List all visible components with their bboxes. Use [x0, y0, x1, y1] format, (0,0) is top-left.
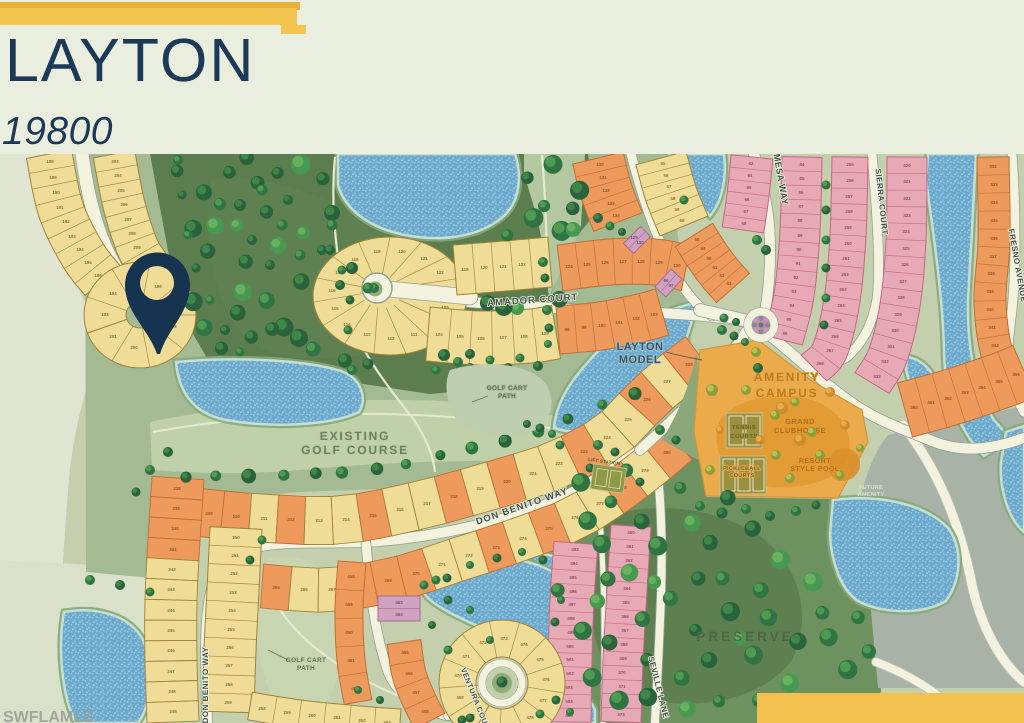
svg-text:331: 331 — [887, 344, 895, 349]
svg-text:EXISTING: EXISTING — [320, 429, 390, 443]
svg-text:280: 280 — [663, 450, 671, 455]
svg-text:PATH: PATH — [297, 665, 315, 672]
svg-text:333: 333 — [990, 182, 998, 187]
svg-text:CAMPUS: CAMPUS — [756, 386, 819, 400]
svg-text:60: 60 — [680, 218, 685, 223]
svg-text:122: 122 — [436, 270, 444, 275]
svg-text:366: 366 — [621, 614, 629, 619]
svg-text:256: 256 — [226, 645, 234, 650]
svg-text:DON BENITO WAY: DON BENITO WAY — [201, 646, 210, 723]
svg-text:126: 126 — [601, 260, 609, 265]
svg-text:96: 96 — [783, 331, 788, 336]
svg-text:214: 214 — [342, 517, 350, 522]
svg-text:257: 257 — [225, 663, 233, 668]
svg-text:63: 63 — [749, 161, 754, 166]
svg-text:57: 57 — [667, 184, 672, 189]
svg-text:88: 88 — [798, 218, 803, 223]
svg-text:91: 91 — [796, 261, 801, 266]
svg-text:277: 277 — [596, 501, 604, 506]
svg-text:324: 324 — [902, 229, 910, 234]
svg-text:190: 190 — [52, 190, 60, 195]
svg-text:460: 460 — [345, 630, 353, 635]
svg-text:228: 228 — [685, 362, 693, 367]
svg-text:251: 251 — [231, 553, 239, 558]
svg-text:PRESERVE: PRESERVE — [696, 629, 793, 644]
svg-text:266: 266 — [300, 587, 308, 592]
svg-text:STYLE POOL: STYLE POOL — [790, 466, 840, 473]
svg-text:240: 240 — [171, 526, 179, 531]
svg-text:219: 219 — [476, 486, 484, 491]
svg-text:252: 252 — [230, 571, 238, 576]
svg-text:207: 207 — [124, 217, 132, 222]
svg-text:101: 101 — [615, 320, 623, 325]
svg-text:84: 84 — [800, 162, 805, 167]
svg-text:248: 248 — [168, 689, 176, 694]
svg-text:259: 259 — [283, 710, 291, 715]
svg-text:95: 95 — [787, 317, 792, 322]
svg-text:223: 223 — [580, 449, 588, 454]
svg-text:250: 250 — [232, 535, 240, 540]
svg-text:SWFLAMLS: SWFLAMLS — [3, 709, 94, 723]
svg-text:100: 100 — [598, 323, 606, 328]
svg-text:192: 192 — [62, 219, 70, 224]
svg-text:196: 196 — [154, 284, 162, 289]
svg-text:365: 365 — [995, 379, 1003, 384]
svg-text:59: 59 — [675, 207, 680, 212]
svg-text:90: 90 — [797, 247, 802, 252]
svg-text:224: 224 — [603, 435, 611, 440]
svg-text:106: 106 — [477, 336, 485, 341]
svg-text:320: 320 — [903, 163, 911, 168]
svg-text:LAYTON: LAYTON — [5, 26, 255, 94]
svg-text:218: 218 — [450, 494, 458, 499]
svg-text:244: 244 — [167, 608, 175, 613]
svg-text:209: 209 — [133, 245, 141, 250]
svg-text:364: 364 — [623, 586, 631, 591]
svg-text:206: 206 — [120, 202, 128, 207]
svg-text:339: 339 — [986, 289, 994, 294]
svg-text:55: 55 — [661, 161, 666, 166]
svg-text:246: 246 — [167, 648, 175, 653]
svg-text:58: 58 — [695, 237, 700, 242]
svg-text:241: 241 — [169, 547, 177, 552]
svg-text:97: 97 — [669, 283, 674, 288]
svg-text:61: 61 — [713, 265, 718, 270]
svg-text:495: 495 — [569, 575, 577, 580]
svg-text:258: 258 — [845, 209, 853, 214]
svg-text:212: 212 — [287, 517, 295, 522]
svg-text:115: 115 — [331, 306, 339, 311]
svg-text:259: 259 — [224, 700, 232, 705]
svg-text:475: 475 — [536, 657, 544, 662]
svg-text:134: 134 — [612, 213, 620, 218]
svg-text:275: 275 — [545, 526, 553, 531]
svg-text:AMENITY: AMENITY — [754, 370, 821, 384]
svg-text:458: 458 — [421, 709, 429, 714]
svg-text:211: 211 — [260, 516, 268, 521]
svg-text:267: 267 — [826, 348, 834, 353]
svg-text:132: 132 — [602, 188, 610, 193]
svg-text:342: 342 — [991, 343, 999, 348]
svg-text:65: 65 — [747, 185, 752, 190]
svg-text:325: 325 — [902, 246, 910, 251]
svg-text:PICKLEBALL: PICKLEBALL — [723, 466, 761, 472]
svg-text:208: 208 — [128, 231, 136, 236]
svg-text:225: 225 — [624, 417, 632, 422]
svg-text:92: 92 — [794, 275, 799, 280]
svg-text:497: 497 — [568, 602, 576, 607]
svg-text:262: 262 — [358, 718, 366, 723]
svg-text:361: 361 — [626, 544, 634, 549]
svg-text:259: 259 — [844, 225, 852, 230]
svg-text:59: 59 — [701, 246, 706, 251]
svg-text:473: 473 — [500, 636, 508, 641]
svg-text:63: 63 — [727, 281, 732, 286]
svg-text:GRAND: GRAND — [785, 417, 815, 426]
svg-text:328: 328 — [897, 295, 905, 300]
svg-text:273: 273 — [492, 545, 500, 550]
svg-text:371: 371 — [618, 684, 626, 689]
svg-text:RESORT: RESORT — [799, 458, 831, 465]
svg-text:268: 268 — [816, 361, 824, 366]
svg-text:104: 104 — [435, 332, 443, 337]
svg-text:327: 327 — [899, 279, 907, 284]
svg-text:264: 264 — [837, 303, 845, 308]
svg-text:269: 269 — [384, 578, 392, 583]
svg-text:262: 262 — [841, 272, 849, 277]
svg-text:98: 98 — [565, 327, 570, 332]
svg-text:CLUBHOUSE: CLUBHOUSE — [774, 426, 826, 435]
svg-text:220: 220 — [503, 479, 511, 484]
svg-text:221: 221 — [529, 471, 537, 476]
svg-text:472: 472 — [479, 640, 487, 645]
svg-text:119: 119 — [461, 267, 469, 272]
svg-text:85: 85 — [800, 176, 805, 181]
svg-text:501: 501 — [566, 657, 574, 662]
svg-text:203: 203 — [111, 159, 119, 164]
svg-text:256: 256 — [846, 178, 854, 183]
svg-text:108: 108 — [520, 334, 528, 339]
svg-text:457: 457 — [412, 690, 420, 695]
svg-text:463: 463 — [395, 600, 403, 605]
svg-text:503: 503 — [565, 685, 573, 690]
svg-text:332: 332 — [881, 359, 889, 364]
svg-text:131: 131 — [599, 175, 607, 180]
svg-text:245: 245 — [167, 628, 175, 633]
svg-text:129: 129 — [655, 260, 663, 265]
svg-text:128: 128 — [637, 259, 645, 264]
svg-text:471: 471 — [462, 654, 470, 659]
svg-text:93: 93 — [792, 289, 797, 294]
svg-text:498: 498 — [567, 616, 575, 621]
svg-text:332: 332 — [989, 164, 997, 169]
svg-text:255: 255 — [227, 627, 235, 632]
svg-text:209: 209 — [205, 511, 213, 516]
svg-text:COURTS: COURTS — [729, 473, 754, 479]
svg-text:500: 500 — [566, 644, 574, 649]
svg-text:189: 189 — [49, 175, 57, 180]
svg-text:GOLF COURSE: GOLF COURSE — [301, 443, 409, 457]
svg-text:68: 68 — [742, 221, 747, 226]
svg-text:113: 113 — [363, 332, 371, 337]
svg-text:334: 334 — [990, 200, 998, 205]
svg-text:370: 370 — [618, 670, 626, 675]
svg-text:247: 247 — [167, 669, 175, 674]
svg-text:130: 130 — [636, 240, 644, 245]
svg-text:121: 121 — [420, 256, 428, 261]
svg-text:GOLF CART: GOLF CART — [286, 657, 327, 664]
svg-text:249: 249 — [169, 709, 177, 714]
svg-text:AMENITY: AMENITY — [858, 492, 885, 498]
svg-text:193: 193 — [68, 234, 76, 239]
svg-text:PATH: PATH — [498, 393, 516, 400]
svg-text:254: 254 — [228, 608, 236, 613]
svg-text:TENNIS: TENNIS — [732, 424, 756, 431]
svg-text:369: 369 — [619, 656, 627, 661]
svg-text:270: 270 — [412, 571, 420, 576]
svg-text:118: 118 — [351, 257, 359, 262]
svg-text:338: 338 — [987, 271, 995, 276]
svg-text:120: 120 — [480, 265, 488, 270]
svg-text:266: 266 — [831, 334, 839, 339]
svg-text:58: 58 — [671, 196, 676, 201]
svg-text:19800: 19800 — [2, 110, 113, 153]
svg-text:89: 89 — [798, 233, 803, 238]
svg-text:193: 193 — [101, 312, 109, 317]
svg-text:321: 321 — [903, 179, 911, 184]
svg-text:194: 194 — [76, 247, 84, 252]
svg-text:330: 330 — [891, 328, 899, 333]
svg-text:265: 265 — [834, 318, 842, 323]
svg-text:201: 201 — [109, 334, 117, 339]
svg-text:341: 341 — [988, 325, 996, 330]
svg-text:276: 276 — [571, 515, 579, 520]
svg-text:242: 242 — [168, 567, 176, 572]
svg-text:195: 195 — [84, 260, 92, 265]
svg-text:271: 271 — [438, 562, 446, 567]
svg-text:105: 105 — [456, 334, 464, 339]
svg-text:103: 103 — [650, 312, 658, 317]
svg-text:99: 99 — [582, 325, 587, 330]
svg-text:FUTURE: FUTURE — [859, 485, 883, 491]
svg-text:478: 478 — [526, 715, 534, 720]
svg-text:56: 56 — [664, 173, 669, 178]
svg-text:124: 124 — [565, 264, 573, 269]
svg-text:367: 367 — [621, 628, 629, 633]
svg-text:112: 112 — [387, 336, 395, 341]
svg-text:455: 455 — [401, 650, 409, 655]
svg-text:274: 274 — [519, 536, 527, 541]
svg-text:188: 188 — [46, 159, 54, 164]
svg-text:267: 267 — [328, 587, 336, 592]
svg-text:502: 502 — [566, 671, 574, 676]
svg-text:272: 272 — [465, 553, 473, 558]
svg-text:130: 130 — [596, 162, 604, 167]
svg-text:265: 265 — [272, 585, 280, 590]
svg-text:194: 194 — [109, 291, 117, 296]
svg-text:364: 364 — [978, 385, 986, 390]
svg-text:127: 127 — [619, 259, 627, 264]
svg-text:243: 243 — [167, 587, 175, 592]
svg-text:227: 227 — [663, 379, 671, 384]
svg-text:122: 122 — [518, 262, 526, 267]
svg-text:469: 469 — [456, 695, 464, 700]
svg-text:335: 335 — [990, 218, 998, 223]
svg-text:87: 87 — [799, 204, 804, 209]
svg-text:102: 102 — [632, 316, 640, 321]
svg-text:191: 191 — [56, 205, 64, 210]
svg-text:64: 64 — [748, 173, 753, 178]
svg-text:496: 496 — [569, 589, 577, 594]
svg-text:COURTS: COURTS — [730, 433, 758, 440]
svg-text:368: 368 — [620, 642, 628, 647]
svg-text:333: 333 — [873, 374, 881, 379]
svg-text:86: 86 — [799, 190, 804, 195]
svg-text:213: 213 — [315, 518, 323, 523]
svg-text:210: 210 — [232, 514, 240, 519]
svg-text:204: 204 — [114, 173, 122, 178]
svg-text:326: 326 — [901, 262, 909, 267]
svg-text:464: 464 — [395, 612, 403, 617]
svg-text:260: 260 — [308, 713, 316, 718]
svg-text:365: 365 — [622, 600, 630, 605]
svg-text:LAYTON: LAYTON — [616, 341, 663, 353]
svg-text:205: 205 — [117, 188, 125, 193]
svg-text:125: 125 — [583, 262, 591, 267]
svg-text:255: 255 — [846, 162, 854, 167]
svg-text:340: 340 — [986, 307, 994, 312]
svg-text:494: 494 — [570, 561, 578, 566]
svg-text:133: 133 — [607, 201, 615, 206]
svg-text:215: 215 — [369, 513, 377, 518]
svg-text:474: 474 — [520, 642, 528, 647]
svg-text:477: 477 — [539, 698, 547, 703]
svg-text:253: 253 — [229, 590, 237, 595]
svg-text:258: 258 — [225, 682, 233, 687]
svg-text:459: 459 — [345, 602, 353, 607]
svg-text:361: 361 — [927, 400, 935, 405]
svg-text:329: 329 — [894, 312, 902, 317]
svg-text:200: 200 — [130, 345, 138, 350]
svg-text:116: 116 — [328, 288, 336, 293]
svg-text:67: 67 — [744, 209, 749, 214]
svg-text:121: 121 — [499, 264, 507, 269]
svg-text:458: 458 — [347, 574, 355, 579]
svg-text:217: 217 — [423, 501, 431, 506]
svg-text:94: 94 — [790, 303, 795, 308]
svg-text:119: 119 — [373, 249, 381, 254]
svg-text:260: 260 — [844, 241, 852, 246]
svg-text:120: 120 — [398, 249, 406, 254]
svg-text:261: 261 — [842, 256, 850, 261]
svg-text:337: 337 — [989, 254, 997, 259]
svg-text:263: 263 — [839, 287, 847, 292]
svg-text:362: 362 — [944, 396, 952, 401]
svg-text:111: 111 — [411, 332, 418, 337]
svg-text:461: 461 — [347, 658, 355, 663]
svg-text:336: 336 — [990, 236, 998, 241]
svg-text:373: 373 — [617, 712, 625, 717]
svg-text:257: 257 — [845, 194, 853, 199]
svg-text:60: 60 — [707, 256, 712, 261]
svg-text:476: 476 — [542, 677, 550, 682]
svg-text:366: 366 — [1012, 372, 1020, 377]
svg-text:493: 493 — [571, 547, 579, 552]
svg-text:258: 258 — [258, 706, 266, 711]
svg-text:62: 62 — [720, 273, 725, 278]
svg-text:456: 456 — [405, 671, 413, 676]
svg-text:261: 261 — [333, 715, 341, 720]
svg-text:216: 216 — [396, 507, 404, 512]
svg-text:362: 362 — [625, 558, 633, 563]
svg-text:239: 239 — [172, 506, 180, 511]
svg-text:222: 222 — [555, 461, 563, 466]
svg-text:107: 107 — [499, 335, 507, 340]
svg-text:363: 363 — [961, 390, 969, 395]
svg-text:279: 279 — [641, 468, 649, 473]
svg-text:323: 323 — [903, 213, 911, 218]
svg-text:GOLF CART: GOLF CART — [487, 385, 528, 392]
svg-text:MODEL: MODEL — [619, 354, 661, 366]
svg-text:504: 504 — [565, 699, 573, 704]
svg-text:66: 66 — [745, 197, 750, 202]
svg-text:226: 226 — [643, 397, 651, 402]
svg-text:130: 130 — [673, 263, 681, 268]
svg-text:238: 238 — [173, 486, 181, 491]
svg-text:360: 360 — [627, 530, 635, 535]
svg-text:360: 360 — [910, 405, 918, 410]
svg-text:322: 322 — [903, 196, 911, 201]
